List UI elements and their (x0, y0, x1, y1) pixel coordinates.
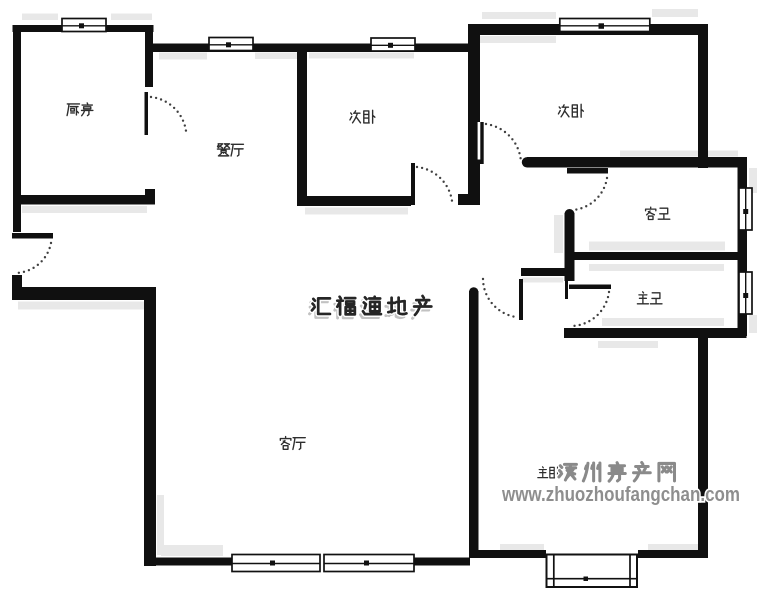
svg-text:www.zhuozhoufangchan.com: www.zhuozhoufangchan.com (501, 483, 740, 506)
